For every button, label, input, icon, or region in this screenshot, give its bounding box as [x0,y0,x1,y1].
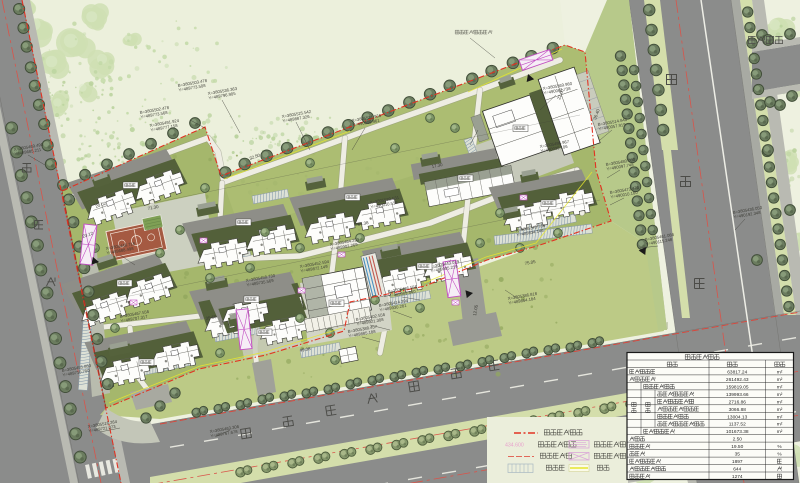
svg-text:644: 644 [733,467,741,473]
svg-text:3066.88: 3066.88 [729,407,747,413]
svg-text:m²: m² [777,369,783,375]
svg-text:139993.66: 139993.66 [726,392,749,398]
svg-text:m²: m² [777,377,783,383]
svg-text:13004.13: 13004.13 [727,414,747,420]
svg-text:m²: m² [777,429,783,435]
svg-text:%: % [777,444,782,450]
svg-text:m²: m² [777,407,783,413]
svg-text:m²: m² [777,392,783,398]
svg-text:m²: m² [777,399,783,405]
svg-text:1274: 1274 [732,474,743,480]
svg-text:63817.24: 63817.24 [727,369,747,375]
svg-text:2716.86: 2716.86 [729,399,747,405]
svg-text:1137.52: 1137.52 [729,422,746,428]
svg-text:261492.43: 261492.43 [726,377,749,383]
svg-text:1897: 1897 [732,459,743,465]
svg-text:101673.38: 101673.38 [726,429,749,435]
svg-text:m²: m² [777,384,783,390]
svg-text:m²: m² [777,422,783,428]
svg-text:159819.05: 159819.05 [726,384,749,390]
svg-text:%: % [777,452,782,458]
svg-text:35: 35 [735,452,741,458]
svg-text:19.50: 19.50 [731,444,743,450]
svg-text:m²: m² [777,414,783,420]
svg-text:434.600: 434.600 [505,443,524,449]
svg-text:2.50: 2.50 [733,437,743,443]
